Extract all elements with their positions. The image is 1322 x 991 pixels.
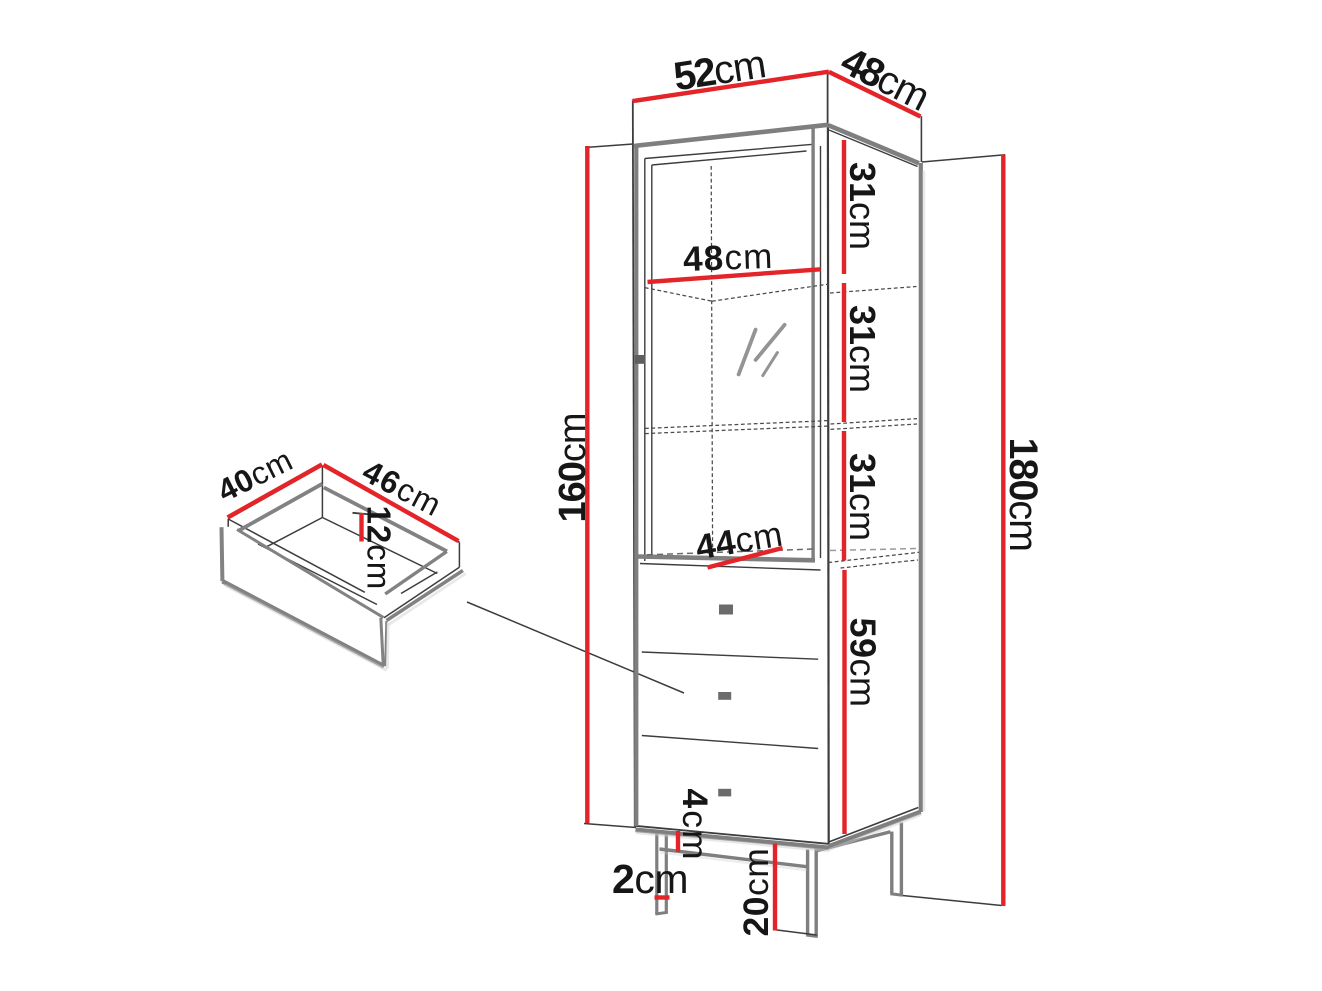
svg-text:2cm: 2cm (612, 856, 688, 902)
svg-text:160cm: 160cm (552, 413, 594, 522)
svg-text:40cm: 40cm (212, 441, 299, 508)
svg-text:31cm: 31cm (842, 453, 883, 541)
svg-text:31cm: 31cm (842, 305, 883, 393)
svg-text:48cm: 48cm (682, 237, 774, 279)
svg-text:59cm: 59cm (843, 618, 884, 708)
svg-text:48cm: 48cm (834, 39, 936, 120)
svg-text:180cm: 180cm (1001, 438, 1045, 552)
svg-text:31cm: 31cm (842, 162, 883, 250)
svg-text:20cm: 20cm (736, 848, 776, 937)
svg-text:12cm: 12cm (361, 506, 398, 591)
svg-text:4cm: 4cm (675, 789, 715, 862)
svg-text:52cm: 52cm (671, 42, 768, 99)
